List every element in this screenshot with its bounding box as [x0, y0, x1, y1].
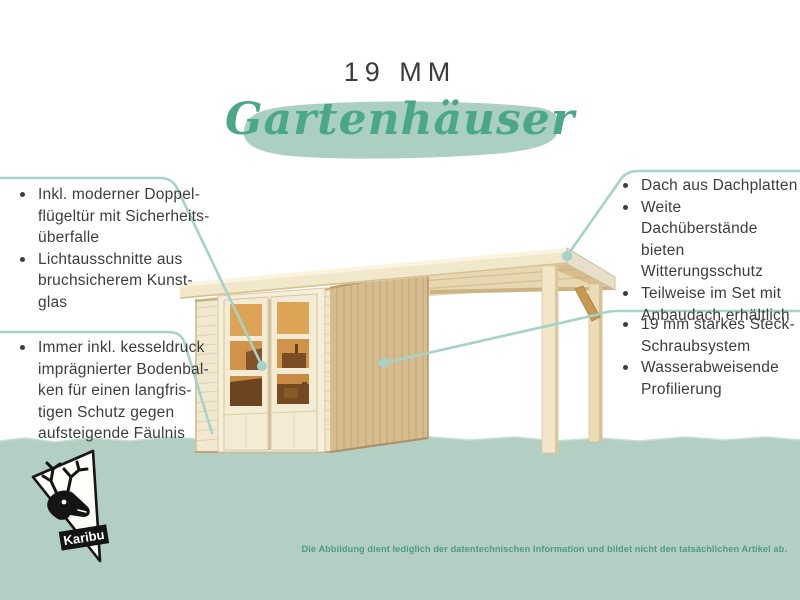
feature-line: Weite Dachüberstände	[623, 197, 800, 240]
feature-text: aufsteigende Fäulnis	[38, 423, 185, 445]
feature-text: Schraubsystem	[641, 336, 750, 358]
feature-line: flügeltür mit Sicherheits-	[20, 206, 210, 228]
feature-line: Dach aus Dachplatten	[623, 175, 800, 197]
bullet-dot	[623, 291, 628, 296]
bullet-dot	[20, 345, 25, 350]
feature-line: Lichtausschnitte aus	[20, 249, 210, 271]
callout-dot-door	[257, 361, 267, 371]
bullet-dot	[20, 257, 25, 262]
category-script-title: Gartenhäuser	[0, 94, 800, 145]
shed-side-wall	[330, 268, 428, 452]
feature-line: Inkl. moderner Doppel-	[20, 184, 210, 206]
feature-text: Profilierung	[641, 379, 722, 401]
feature-text: Teilweise im Set mit	[641, 283, 781, 305]
feature-text: flügeltür mit Sicherheits-	[38, 206, 209, 228]
feature-text: bieten Witterungsschutz	[641, 240, 800, 283]
feature-text: imprägnierter Bodenbal-	[38, 359, 209, 381]
feature-list-left-bottom: Immer inkl. kesseldruck imprägnierter Bo…	[20, 337, 225, 445]
feature-text: Dach aus Dachplatten	[641, 175, 798, 197]
bullet-dot	[20, 192, 25, 197]
feature-list-left-top: Inkl. moderner Doppel- flügeltür mit Sic…	[20, 184, 210, 314]
feature-list-right-top: Dach aus Dachplatten Weite Dachüberständ…	[623, 175, 800, 326]
feature-line: imprägnierter Bodenbal-	[20, 359, 225, 381]
poster-page: Karibu 19 MM Gartenhäuser Inkl. moderner…	[0, 0, 800, 600]
feature-text: tigen Schutz gegen	[38, 402, 174, 424]
feature-line: bruchsicherem Kunst-	[20, 270, 210, 292]
feature-text: Inkl. moderner Doppel-	[38, 184, 200, 206]
feature-line: überfalle	[20, 227, 210, 249]
feature-text: überfalle	[38, 227, 99, 249]
bullet-dot	[623, 183, 628, 188]
door-handle	[302, 382, 307, 388]
double-door	[218, 288, 325, 452]
feature-line: Wasserabweisende	[623, 357, 800, 379]
feature-line: tigen Schutz gegen	[20, 402, 225, 424]
garden-house-illustration	[180, 248, 616, 453]
feature-text: Weite Dachüberstände	[641, 197, 800, 240]
bullet-dot	[623, 205, 628, 210]
disclaimer-text: Die Abbildung dient lediglich der datent…	[302, 544, 787, 554]
bullet-dot	[623, 365, 628, 370]
feature-text: Immer inkl. kesseldruck	[38, 337, 205, 359]
feature-text: Lichtausschnitte aus	[38, 249, 182, 271]
feature-line: 19 mm starkes Steck-	[623, 314, 800, 336]
feature-text: 19 mm starkes Steck-	[641, 314, 795, 336]
feature-line: glas	[20, 292, 210, 314]
callout-dot-wall	[379, 358, 389, 368]
canopy-posts	[542, 266, 602, 453]
bullet-dot	[623, 322, 628, 327]
feature-text: ken für einen langfris-	[38, 380, 192, 402]
callout-dot-roof	[562, 251, 572, 261]
feature-line: aufsteigende Fäulnis	[20, 423, 225, 445]
feature-text: Wasserabweisende	[641, 357, 779, 379]
feature-text: glas	[38, 292, 67, 314]
feature-line: ken für einen langfris-	[20, 380, 225, 402]
feature-line: Schraubsystem	[623, 336, 800, 358]
feature-line: bieten Witterungsschutz	[623, 240, 800, 283]
bottom-band	[0, 437, 800, 600]
feature-line: Immer inkl. kesseldruck	[20, 337, 225, 359]
feature-text: bruchsicherem Kunst-	[38, 270, 193, 292]
feature-list-right-middle: 19 mm starkes Steck- Schraubsystem Wasse…	[623, 314, 800, 400]
page-title: 19 MM	[0, 57, 800, 88]
feature-line: Profilierung	[623, 379, 800, 401]
feature-line: Teilweise im Set mit	[623, 283, 800, 305]
